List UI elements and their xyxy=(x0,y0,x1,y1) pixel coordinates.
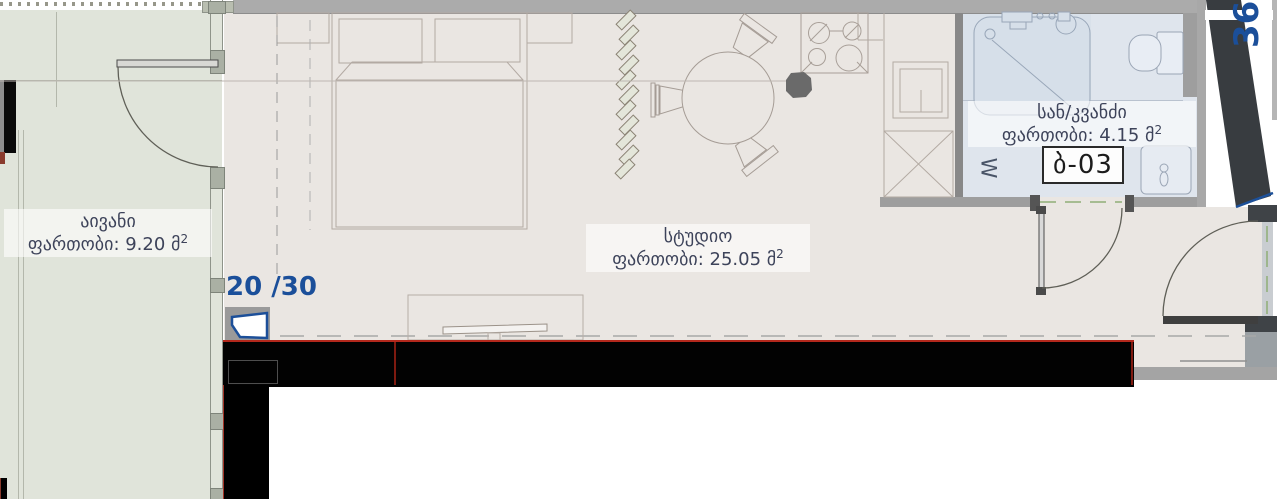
black-wall-band xyxy=(223,340,1134,387)
balcony-label: აივანი ფართობი: 9.20 მ2 xyxy=(4,209,212,257)
balcony-vline-1 xyxy=(18,130,19,499)
studio-label: სტუდიო ფართობი: 25.05 მ2 xyxy=(586,224,810,272)
black-wall-strip xyxy=(223,385,269,499)
bathroom-left-wall xyxy=(955,13,963,197)
balcony-red-mark xyxy=(0,152,5,164)
entry-wall-block-bottom xyxy=(1245,316,1277,332)
entry-outer-strip xyxy=(1262,222,1273,316)
balcony-railing-dots xyxy=(0,2,202,6)
balcony-vline-3 xyxy=(56,12,57,107)
window-symbol-block xyxy=(225,307,270,341)
bottom-wall-band xyxy=(1134,367,1277,380)
door-jamb-left xyxy=(1030,195,1040,211)
bathroom-bottom-wall-right xyxy=(1125,197,1197,207)
window-ratio-label: 20 /30 xyxy=(226,272,317,302)
bathroom-name: სან/კვანძი xyxy=(968,102,1196,123)
balcony-hline xyxy=(0,80,222,81)
balcony-name: აივანი xyxy=(4,211,212,232)
red-joint-1 xyxy=(394,342,396,385)
door-jamb-right xyxy=(1125,195,1134,212)
floor-plan-canvas: აივანი ფართობი: 9.20 მ2 სტუდიო ფართობი: … xyxy=(0,0,1277,499)
balcony-wall-black xyxy=(4,80,16,153)
corridor-floor-lower xyxy=(1134,341,1257,367)
unit-number: ბ-03 xyxy=(1053,150,1113,180)
bathroom-label: სან/კვანძი ფართობი: 4.15 მ2 xyxy=(968,101,1196,147)
bathroom-area: ფართობი: 4.15 მ xyxy=(1002,125,1155,146)
window-mullion-4 xyxy=(210,278,225,293)
washer-symbol: W xyxy=(976,158,1000,179)
studio-area: ფართობი: 25.05 მ xyxy=(612,249,776,270)
wall-dimension-label: 360 xyxy=(1227,0,1267,48)
window-mullion-3 xyxy=(210,167,225,189)
band-inner-outline xyxy=(228,360,278,384)
shower-zone xyxy=(963,13,1091,101)
window-mullion-1 xyxy=(208,1,226,14)
red-joint-2 xyxy=(1131,342,1133,385)
entry-wall-block-top xyxy=(1248,205,1277,222)
studio-name: სტუდიო xyxy=(586,226,810,247)
bathroom-bottom-wall-left xyxy=(880,197,1032,207)
right-wall-upper xyxy=(1197,0,1206,207)
balcony-vline-2 xyxy=(23,130,24,499)
top-wall xyxy=(233,0,1205,14)
balcony-black-bottom xyxy=(0,478,7,499)
balcony-area: ფართობი: 9.20 მ xyxy=(28,234,181,255)
right-edge-strip xyxy=(1272,0,1277,120)
bathroom-partition-wall xyxy=(1183,13,1197,97)
unit-number-box: ბ-03 xyxy=(1042,146,1124,184)
window-mullion-2 xyxy=(210,50,225,74)
